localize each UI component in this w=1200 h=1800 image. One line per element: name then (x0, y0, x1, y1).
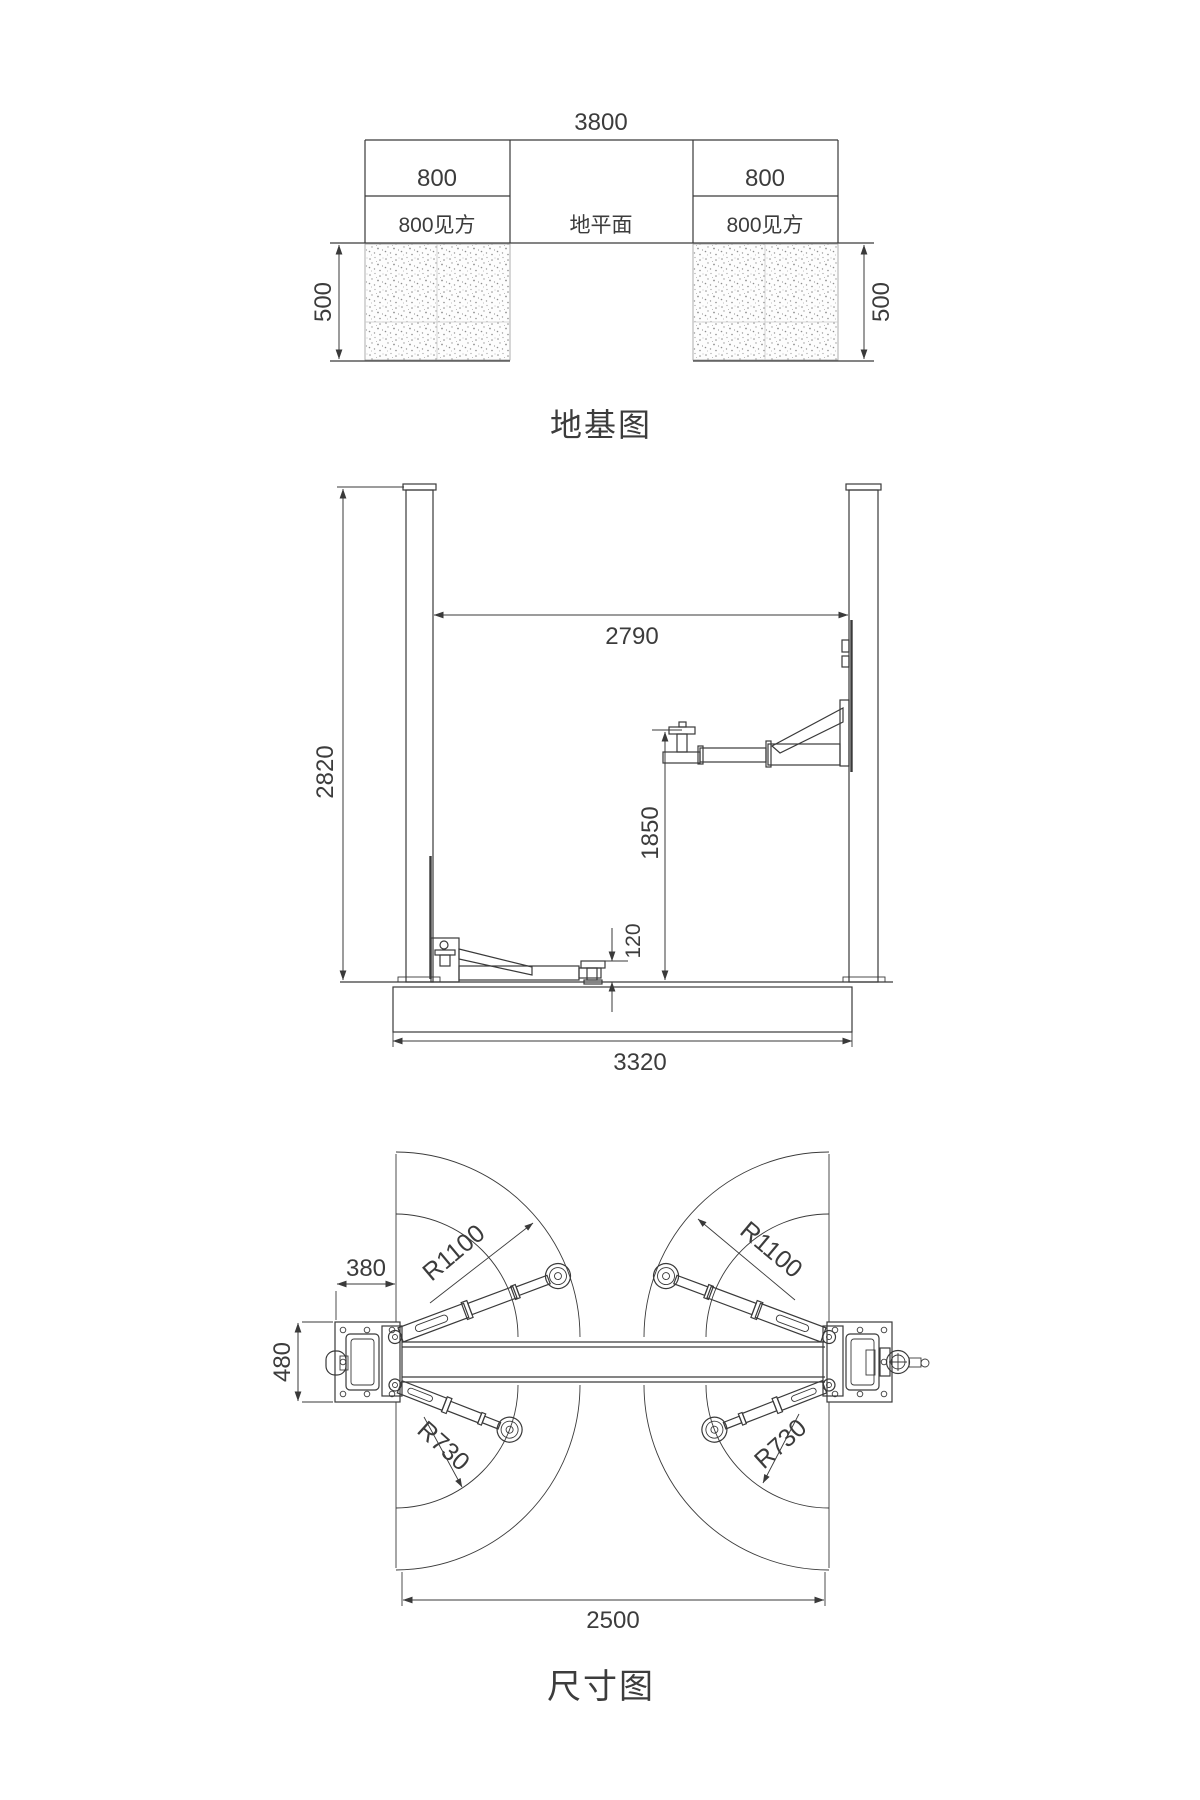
dim-3320: 3320 (613, 1049, 666, 1076)
pad-height-ticks (603, 961, 628, 982)
dim-500-left: 500 (310, 282, 337, 322)
raised-lift-arm (663, 708, 843, 767)
foundation-title: 地基图 (550, 407, 652, 443)
pivot-pin (440, 941, 448, 949)
concrete-pad-left (365, 244, 510, 360)
dim-2820: 2820 (312, 745, 339, 798)
plan-title: 尺寸图 (547, 1668, 655, 1706)
concrete-pad-right (693, 244, 838, 360)
dim-800-left: 800 (417, 165, 457, 192)
dim-2790: 2790 (605, 623, 658, 650)
dim-2500: 2500 (586, 1607, 639, 1634)
pivot-plate (382, 1326, 402, 1396)
base-ext-lines (393, 1032, 852, 1047)
pad-plate (581, 961, 605, 968)
radius-label-r730-left: R730 (412, 1416, 475, 1477)
left-post-plan (326, 1322, 402, 1402)
left-column-cap (403, 484, 436, 490)
dim-500-right: 500 (868, 282, 895, 322)
radius-label-r730-right: R730 (749, 1414, 812, 1475)
dim-800-right: 800 (745, 165, 785, 192)
motor (326, 1351, 346, 1375)
right-post-plan (823, 1322, 929, 1402)
dim-480: 480 (269, 1342, 296, 1382)
lock-block (842, 640, 849, 652)
dim-120: 120 (622, 923, 645, 958)
depth-ext-lines (302, 1322, 333, 1402)
lock-block (842, 656, 849, 667)
dim-380: 380 (346, 1255, 386, 1282)
plan-view: R1100 R1100 R730 R730 380 480 2500 尺寸图 (269, 1152, 929, 1706)
ground-label: 地平面 (570, 214, 633, 237)
swing-envelope-edges (396, 1154, 829, 1568)
right-column-cap (846, 484, 881, 490)
span-ext-lines (402, 1572, 825, 1606)
pad-plate (669, 727, 695, 734)
pad-stem (677, 734, 687, 752)
arm-brace (772, 708, 843, 753)
long-arm-left (385, 1260, 575, 1351)
technical-drawing-page: 3800 800 800 800见方 地平面 800见方 500 500 地基图… (0, 0, 1200, 1800)
dim-3800: 3800 (574, 109, 627, 136)
foundation-view: 3800 800 800 800见方 地平面 800见方 500 500 地基图 (310, 109, 895, 443)
pivot-plate (823, 1326, 843, 1396)
arm-brace (459, 949, 532, 975)
lowered-lift-arm (431, 938, 605, 984)
radius-label-r1100-right: R1100 (735, 1216, 808, 1284)
front-view: 2820 2790 1850 (312, 484, 893, 1076)
dim-1850: 1850 (637, 806, 664, 859)
pad-knob (679, 722, 686, 727)
left-carriage (431, 938, 459, 982)
pad-square-label-right: 800见方 (726, 214, 803, 237)
base-track-band (402, 1342, 825, 1382)
pad-square-label-left: 800见方 (398, 214, 475, 237)
right-column (849, 490, 878, 982)
swing-arc-r1100-right-lower (644, 1385, 829, 1570)
right-carriage (840, 700, 849, 766)
left-base-plate (398, 977, 440, 982)
two-post-lift-drawing: 3800 800 800 800见方 地平面 800见方 500 500 地基图… (0, 0, 1200, 1800)
power-unit (880, 1348, 929, 1376)
base-slab (393, 987, 852, 1032)
swing-arc-r1100-left-lower (396, 1385, 580, 1570)
long-arm-right (650, 1260, 840, 1351)
left-column (406, 490, 433, 982)
